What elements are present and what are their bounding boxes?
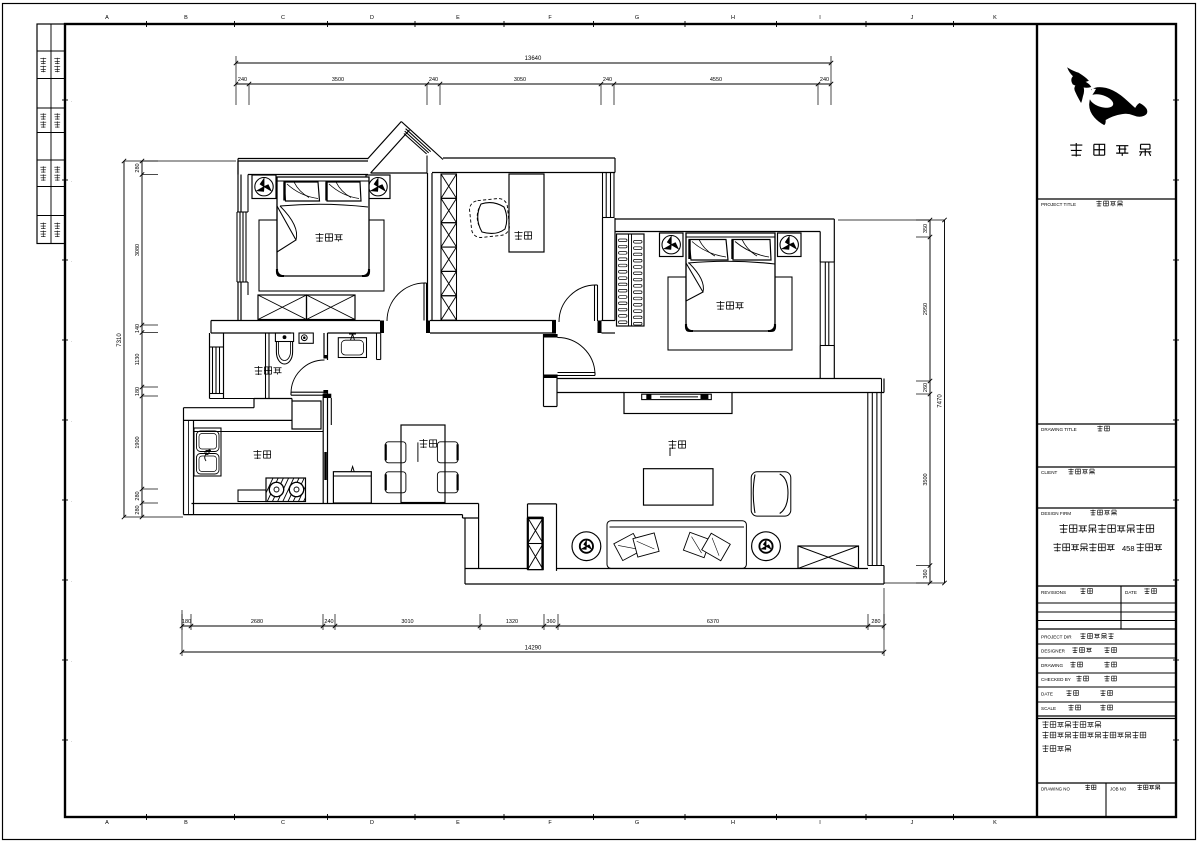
svg-text:240: 240 — [603, 77, 612, 83]
svg-text:CHECKED BY: CHECKED BY — [1041, 677, 1071, 682]
svg-text:J: J — [911, 15, 914, 21]
svg-text:1130: 1130 — [135, 354, 141, 366]
svg-text:260: 260 — [923, 383, 929, 392]
svg-text:DRAWING TITLE: DRAWING TITLE — [1041, 427, 1077, 432]
svg-text:DRAWING: DRAWING — [1041, 663, 1063, 668]
svg-text:4550: 4550 — [710, 77, 722, 83]
svg-text:.: . — [71, 578, 72, 583]
svg-text:280: 280 — [135, 163, 141, 172]
svg-text:280: 280 — [135, 491, 141, 500]
svg-text:2680: 2680 — [251, 619, 263, 625]
svg-text:C: C — [281, 15, 285, 21]
svg-text:.: . — [71, 418, 72, 423]
svg-text:240: 240 — [820, 77, 829, 83]
svg-text:PROJECT DIR: PROJECT DIR — [1041, 635, 1072, 640]
svg-text:7310: 7310 — [117, 333, 123, 347]
svg-text:E: E — [456, 15, 460, 21]
svg-text:CLIENT: CLIENT — [1041, 470, 1058, 475]
svg-text:A: A — [105, 820, 109, 826]
svg-text:SCALE: SCALE — [1041, 706, 1056, 711]
svg-text:3010: 3010 — [401, 619, 413, 625]
svg-text:458: 458 — [1122, 544, 1135, 553]
svg-text:E: E — [456, 820, 460, 826]
svg-text:180: 180 — [135, 387, 141, 396]
svg-text:.: . — [71, 338, 72, 343]
svg-text:.: . — [71, 658, 72, 663]
svg-text:3500: 3500 — [923, 473, 929, 485]
svg-text:.: . — [71, 258, 72, 263]
svg-text:240: 240 — [429, 77, 438, 83]
svg-text:.: . — [71, 498, 72, 503]
svg-text:240: 240 — [324, 619, 333, 625]
svg-text:2950: 2950 — [923, 303, 929, 315]
svg-text:J: J — [911, 820, 914, 826]
svg-text:H: H — [731, 15, 735, 21]
svg-text:K: K — [993, 15, 997, 21]
svg-text:K: K — [993, 820, 997, 826]
svg-text:14290: 14290 — [525, 646, 542, 652]
svg-text:DRAWING NO: DRAWING NO — [1041, 787, 1070, 792]
svg-text:B: B — [184, 15, 188, 21]
svg-text:3050: 3050 — [514, 77, 526, 83]
svg-text:140: 140 — [135, 324, 141, 333]
svg-text:H: H — [731, 820, 735, 826]
svg-text:7470: 7470 — [938, 394, 944, 408]
svg-text:13640: 13640 — [525, 56, 542, 62]
svg-text:D: D — [370, 820, 374, 826]
svg-text:280: 280 — [871, 619, 880, 625]
svg-text:DESIGNER: DESIGNER — [1041, 649, 1066, 654]
svg-text:350: 350 — [923, 224, 929, 233]
svg-text:B: B — [184, 820, 188, 826]
svg-text:360: 360 — [923, 569, 929, 578]
svg-text:.: . — [71, 178, 72, 183]
svg-text:.: . — [71, 738, 72, 743]
svg-text:DESIGN FIRM: DESIGN FIRM — [1041, 511, 1071, 516]
svg-text:.: . — [71, 98, 72, 103]
svg-text:REVISIONS: REVISIONS — [1041, 590, 1066, 595]
svg-text:3500: 3500 — [332, 77, 344, 83]
svg-text:A: A — [105, 15, 109, 21]
svg-text:1320: 1320 — [506, 619, 518, 625]
svg-text:G: G — [635, 15, 639, 21]
svg-text:1900: 1900 — [135, 436, 141, 448]
svg-text:240: 240 — [238, 77, 247, 83]
svg-text:DATE: DATE — [1041, 692, 1053, 697]
svg-text:360: 360 — [546, 619, 555, 625]
svg-text:DATE: DATE — [1125, 590, 1137, 595]
svg-text:C: C — [281, 820, 285, 826]
svg-text:PROJECT TITLE: PROJECT TITLE — [1041, 202, 1076, 207]
svg-text:JOB NO: JOB NO — [1110, 787, 1127, 792]
svg-text:280: 280 — [135, 505, 141, 514]
svg-text:3080: 3080 — [135, 244, 141, 256]
svg-text:D: D — [370, 15, 374, 21]
svg-text:180: 180 — [182, 619, 191, 625]
svg-text:G: G — [635, 820, 639, 826]
svg-text:6370: 6370 — [707, 619, 719, 625]
